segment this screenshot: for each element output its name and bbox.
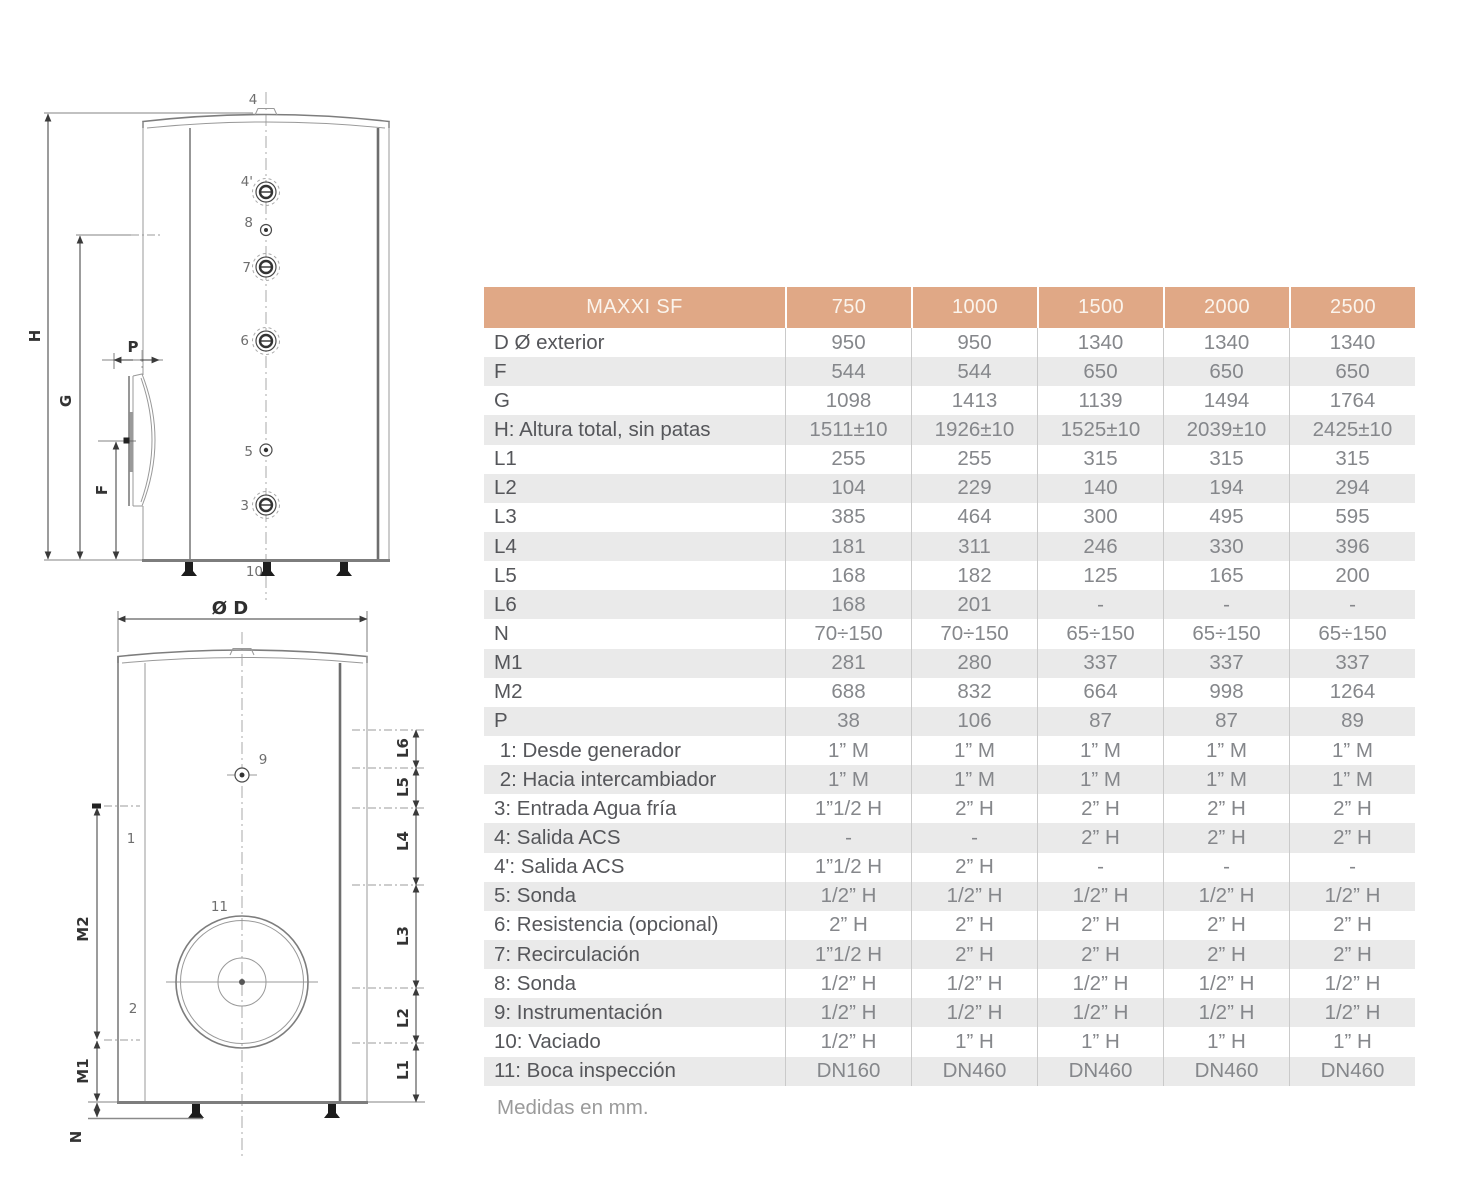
value-cell: 1” M: [1289, 736, 1415, 765]
row-label: 4: Salida ACS: [484, 823, 785, 852]
value-cell: 1/2” H: [1037, 969, 1163, 998]
value-cell: 89: [1289, 707, 1415, 736]
value-cell: 1/2” H: [1289, 882, 1415, 911]
table-row: 8: Sonda1/2” H1/2” H1/2” H1/2” H1/2” H: [484, 969, 1415, 998]
value-cell: 106: [911, 707, 1037, 736]
value-cell: 315: [1037, 445, 1163, 474]
value-cell: 1/2” H: [785, 969, 911, 998]
foot-left: [188, 1104, 204, 1118]
value-cell: 1764: [1289, 386, 1415, 415]
value-cell: 2” H: [1289, 911, 1415, 940]
connection-7: [253, 254, 280, 281]
value-cell: 650: [1037, 357, 1163, 386]
value-cell: 104: [785, 474, 911, 503]
row-label: 6: Resistencia (opcional): [484, 911, 785, 940]
column-header: 2500: [1289, 287, 1415, 328]
value-cell: 950: [911, 328, 1037, 357]
table-row: 4': Salida ACS1”1/2 H2” H---: [484, 853, 1415, 882]
value-cell: 544: [911, 357, 1037, 386]
connection-label-9: 9: [259, 752, 268, 768]
value-cell: 1” M: [911, 736, 1037, 765]
value-cell: 337: [1037, 649, 1163, 678]
value-cell: 315: [1289, 445, 1415, 474]
table-row: L5168182125165200: [484, 561, 1415, 590]
table-row: G10981413113914941764: [484, 386, 1415, 415]
table-row: L4181311246330396: [484, 532, 1415, 561]
value-cell: 1413: [911, 386, 1037, 415]
table-row: 11: Boca inspecciónDN160DN460DN460DN460D…: [484, 1057, 1415, 1086]
value-cell: 1”1/2 H: [785, 940, 911, 969]
table-row: 9: Instrumentación1/2” H1/2” H1/2” H1/2”…: [484, 998, 1415, 1027]
row-label: 2: Hacia intercambiador: [484, 765, 785, 794]
value-cell: 950: [785, 328, 911, 357]
value-cell: -: [1163, 853, 1289, 882]
table-row: 2: Hacia intercambiador1” M1” M1” M1” M1…: [484, 765, 1415, 794]
connection-9: [227, 768, 257, 782]
value-cell: 181: [785, 532, 911, 561]
table-row: 7: Recirculación1”1/2 H2” H2” H2” H2” H: [484, 940, 1415, 969]
value-cell: 650: [1289, 357, 1415, 386]
row-label: M2: [484, 678, 785, 707]
value-cell: 2” H: [1289, 794, 1415, 823]
spec-table: MAXXI SF 7501000150020002500 D Ø exterio…: [484, 287, 1415, 1120]
value-cell: 70÷150: [911, 619, 1037, 648]
bottom-view-drawing: Ø D 9 1 2 11 M2 M1 N L6 L5 L4 L3 L2 L1: [67, 598, 425, 1157]
value-cell: 2” H: [911, 911, 1037, 940]
value-cell: 300: [1037, 503, 1163, 532]
value-cell: 140: [1037, 474, 1163, 503]
value-cell: -: [1037, 590, 1163, 619]
value-cell: 1/2” H: [1037, 998, 1163, 1027]
dim-label-l1: L1: [394, 1060, 412, 1080]
value-cell: 337: [1163, 649, 1289, 678]
column-header: 750: [785, 287, 911, 328]
value-cell: 998: [1163, 678, 1289, 707]
table-row: N70÷15070÷15065÷15065÷15065÷150: [484, 619, 1415, 648]
value-cell: 1139: [1037, 386, 1163, 415]
dim-label-l2: L2: [394, 1008, 412, 1028]
value-cell: DN160: [785, 1057, 911, 1086]
value-cell: 294: [1289, 474, 1415, 503]
value-cell: 87: [1037, 707, 1163, 736]
value-cell: 182: [911, 561, 1037, 590]
value-cell: 125: [1037, 561, 1163, 590]
value-cell: 1511±10: [785, 415, 911, 444]
value-cell: 280: [911, 649, 1037, 678]
row-label: G: [484, 386, 785, 415]
value-cell: -: [785, 823, 911, 852]
value-cell: -: [1163, 590, 1289, 619]
row-label: L3: [484, 503, 785, 532]
row-label: L5: [484, 561, 785, 590]
row-label: 5: Sonda: [484, 882, 785, 911]
value-cell: 1” M: [1289, 765, 1415, 794]
value-cell: 337: [1289, 649, 1415, 678]
value-cell: 495: [1163, 503, 1289, 532]
connection-label-2: 2: [129, 1001, 138, 1017]
value-cell: DN460: [1037, 1057, 1163, 1086]
value-cell: 315: [1163, 445, 1289, 474]
row-label: P: [484, 707, 785, 736]
value-cell: 201: [911, 590, 1037, 619]
value-cell: -: [911, 823, 1037, 852]
table-row: 4: Salida ACS--2” H2” H2” H: [484, 823, 1415, 852]
value-cell: 168: [785, 590, 911, 619]
value-cell: 65÷150: [1037, 619, 1163, 648]
row-label: 7: Recirculación: [484, 940, 785, 969]
value-cell: 1/2” H: [1289, 969, 1415, 998]
table-row: L3385464300495595: [484, 503, 1415, 532]
connection-label-3: 3: [240, 498, 249, 514]
value-cell: 832: [911, 678, 1037, 707]
value-cell: 200: [1289, 561, 1415, 590]
value-cell: 1/2” H: [1037, 882, 1163, 911]
dim-label-m1: M1: [74, 1058, 92, 1083]
value-cell: 1340: [1289, 328, 1415, 357]
value-cell: 1/2” H: [911, 969, 1037, 998]
value-cell: 2” H: [1289, 940, 1415, 969]
row-label: N: [484, 619, 785, 648]
value-cell: 1340: [1037, 328, 1163, 357]
value-cell: 1/2” H: [1163, 969, 1289, 998]
value-cell: DN460: [911, 1057, 1037, 1086]
value-cell: 1” M: [785, 765, 911, 794]
value-cell: 168: [785, 561, 911, 590]
row-label: 8: Sonda: [484, 969, 785, 998]
value-cell: -: [1289, 853, 1415, 882]
row-label: M1: [484, 649, 785, 678]
table-row: H: Altura total, sin patas1511±101926±10…: [484, 415, 1415, 444]
table-title: MAXXI SF: [484, 287, 785, 328]
value-cell: 65÷150: [1289, 619, 1415, 648]
value-cell: 38: [785, 707, 911, 736]
value-cell: 255: [785, 445, 911, 474]
value-cell: 1” M: [1163, 765, 1289, 794]
value-cell: 2” H: [1163, 911, 1289, 940]
row-label: 3: Entrada Agua fría: [484, 794, 785, 823]
value-cell: 246: [1037, 532, 1163, 561]
value-cell: 330: [1163, 532, 1289, 561]
value-cell: 2” H: [1037, 794, 1163, 823]
row-label: F: [484, 357, 785, 386]
value-cell: 2” H: [785, 911, 911, 940]
value-cell: 1/2” H: [1163, 998, 1289, 1027]
dim-label-f: F: [93, 485, 111, 495]
connection-label-11: 11: [211, 899, 228, 915]
value-cell: 229: [911, 474, 1037, 503]
row-label: 11: Boca inspección: [484, 1057, 785, 1086]
foot-left: [181, 562, 197, 576]
dim-label-n: N: [67, 1131, 85, 1144]
value-cell: 544: [785, 357, 911, 386]
value-cell: 1340: [1163, 328, 1289, 357]
dim-label-l5: L5: [394, 777, 412, 797]
value-cell: 1” M: [1037, 736, 1163, 765]
value-cell: -: [1289, 590, 1415, 619]
row-label: 9: Instrumentación: [484, 998, 785, 1027]
row-label: 10: Vaciado: [484, 1027, 785, 1056]
value-cell: 2” H: [1289, 823, 1415, 852]
value-cell: 1” M: [911, 765, 1037, 794]
value-cell: DN460: [1163, 1057, 1289, 1086]
side-cover-profile: [129, 374, 155, 506]
connection-label-8: 8: [244, 215, 253, 231]
row-label: L4: [484, 532, 785, 561]
value-cell: 664: [1037, 678, 1163, 707]
dim-label-g: G: [57, 395, 75, 407]
value-cell: 1” M: [1037, 765, 1163, 794]
value-cell: 2” H: [911, 794, 1037, 823]
value-cell: 1098: [785, 386, 911, 415]
value-cell: DN460: [1289, 1057, 1415, 1086]
connection-6: [253, 328, 280, 355]
value-cell: 2” H: [911, 940, 1037, 969]
value-cell: 1/2” H: [785, 882, 911, 911]
value-cell: 650: [1163, 357, 1289, 386]
value-cell: 1/2” H: [911, 882, 1037, 911]
value-cell: 464: [911, 503, 1037, 532]
table-row: M26888326649981264: [484, 678, 1415, 707]
value-cell: 2” H: [911, 853, 1037, 882]
table-row: P38106878789: [484, 707, 1415, 736]
table-row: F544544650650650: [484, 357, 1415, 386]
value-cell: 1”1/2 H: [785, 853, 911, 882]
dim-label-diameter: Ø D: [212, 598, 249, 619]
connection-label-4-prime: 4': [241, 174, 253, 190]
table-row: 6: Resistencia (opcional)2” H2” H2” H2” …: [484, 911, 1415, 940]
connection-3: [253, 492, 280, 519]
value-cell: 1” H: [911, 1027, 1037, 1056]
value-cell: 1”1/2 H: [785, 794, 911, 823]
value-cell: 1494: [1163, 386, 1289, 415]
row-label: D Ø exterior: [484, 328, 785, 357]
value-cell: 2” H: [1037, 911, 1163, 940]
dim-label-p: P: [128, 338, 139, 356]
value-cell: 385: [785, 503, 911, 532]
row-label: L2: [484, 474, 785, 503]
connection-4-prime: [253, 179, 280, 206]
value-cell: 1/2” H: [1289, 998, 1415, 1027]
value-cell: 1/2” H: [1163, 882, 1289, 911]
value-cell: 396: [1289, 532, 1415, 561]
table-row: 10: Vaciado1/2” H1” H1” H1” H1” H: [484, 1027, 1415, 1056]
value-cell: 2” H: [1163, 794, 1289, 823]
value-cell: 255: [911, 445, 1037, 474]
value-cell: 1” M: [785, 736, 911, 765]
table-row: 5: Sonda1/2” H1/2” H1/2” H1/2” H1/2” H: [484, 882, 1415, 911]
row-label: L6: [484, 590, 785, 619]
dim-label-h: H: [26, 330, 44, 343]
foot-right: [336, 562, 352, 576]
foot-right: [324, 1104, 340, 1118]
value-cell: 165: [1163, 561, 1289, 590]
table-row: M1281280337337337: [484, 649, 1415, 678]
front-view-drawing: 4 4' 8 7 6 5 3 10 H G F P: [26, 92, 390, 600]
dim-label-m2: M2: [74, 916, 92, 941]
value-cell: 2425±10: [1289, 415, 1415, 444]
spec-sheet-page: 4 4' 8 7 6 5 3 10 H G F P: [0, 0, 1463, 1183]
value-cell: 2039±10: [1163, 415, 1289, 444]
table-row: 1: Desde generador1” M1” M1” M1” M1” M: [484, 736, 1415, 765]
value-cell: 1” H: [1037, 1027, 1163, 1056]
row-label: H: Altura total, sin patas: [484, 415, 785, 444]
table-row: L1255255315315315: [484, 445, 1415, 474]
value-cell: 2” H: [1163, 823, 1289, 852]
table-row: L6168201---: [484, 590, 1415, 619]
dim-label-l4: L4: [394, 831, 412, 851]
connection-label-6: 6: [240, 333, 249, 349]
tank-technical-drawing: 4 4' 8 7 6 5 3 10 H G F P: [0, 0, 470, 1183]
value-cell: 281: [785, 649, 911, 678]
value-cell: 2” H: [1163, 940, 1289, 969]
value-cell: 688: [785, 678, 911, 707]
connection-label-5: 5: [244, 444, 253, 460]
column-header: 1500: [1037, 287, 1163, 328]
table-footnote: Medidas en mm.: [484, 1096, 1415, 1120]
value-cell: 65÷150: [1163, 619, 1289, 648]
table-row: D Ø exterior950950134013401340: [484, 328, 1415, 357]
value-cell: 1/2” H: [785, 998, 911, 1027]
connection-label-1: 1: [127, 831, 136, 847]
value-cell: 1926±10: [911, 415, 1037, 444]
value-cell: 87: [1163, 707, 1289, 736]
row-label: 4': Salida ACS: [484, 853, 785, 882]
dim-label-l6: L6: [394, 738, 412, 758]
column-header: 1000: [911, 287, 1037, 328]
value-cell: 1” H: [1163, 1027, 1289, 1056]
connection-8: [261, 225, 272, 236]
value-cell: 194: [1163, 474, 1289, 503]
table-row: 3: Entrada Agua fría1”1/2 H2” H2” H2” H2…: [484, 794, 1415, 823]
value-cell: 1” H: [1289, 1027, 1415, 1056]
table-row: L2104229140194294: [484, 474, 1415, 503]
connection-label-10: 10: [246, 564, 263, 580]
table-body: D Ø exterior950950134013401340F544544650…: [484, 328, 1415, 1086]
value-cell: 2” H: [1037, 940, 1163, 969]
row-label: L1: [484, 445, 785, 474]
value-cell: 595: [1289, 503, 1415, 532]
dim-label-l3: L3: [394, 926, 412, 946]
value-cell: 1264: [1289, 678, 1415, 707]
value-cell: 1” M: [1163, 736, 1289, 765]
connection-label-7: 7: [242, 260, 251, 276]
row-label: 1: Desde generador: [484, 736, 785, 765]
connection-label-4: 4: [249, 92, 258, 108]
table-header: MAXXI SF 7501000150020002500: [484, 287, 1415, 328]
value-cell: 1525±10: [1037, 415, 1163, 444]
value-cell: 311: [911, 532, 1037, 561]
value-cell: -: [1037, 853, 1163, 882]
connection-5: [260, 444, 272, 456]
column-header: 2000: [1163, 287, 1289, 328]
value-cell: 1/2” H: [911, 998, 1037, 1027]
value-cell: 2” H: [1037, 823, 1163, 852]
value-cell: 70÷150: [785, 619, 911, 648]
value-cell: 1/2” H: [785, 1027, 911, 1056]
